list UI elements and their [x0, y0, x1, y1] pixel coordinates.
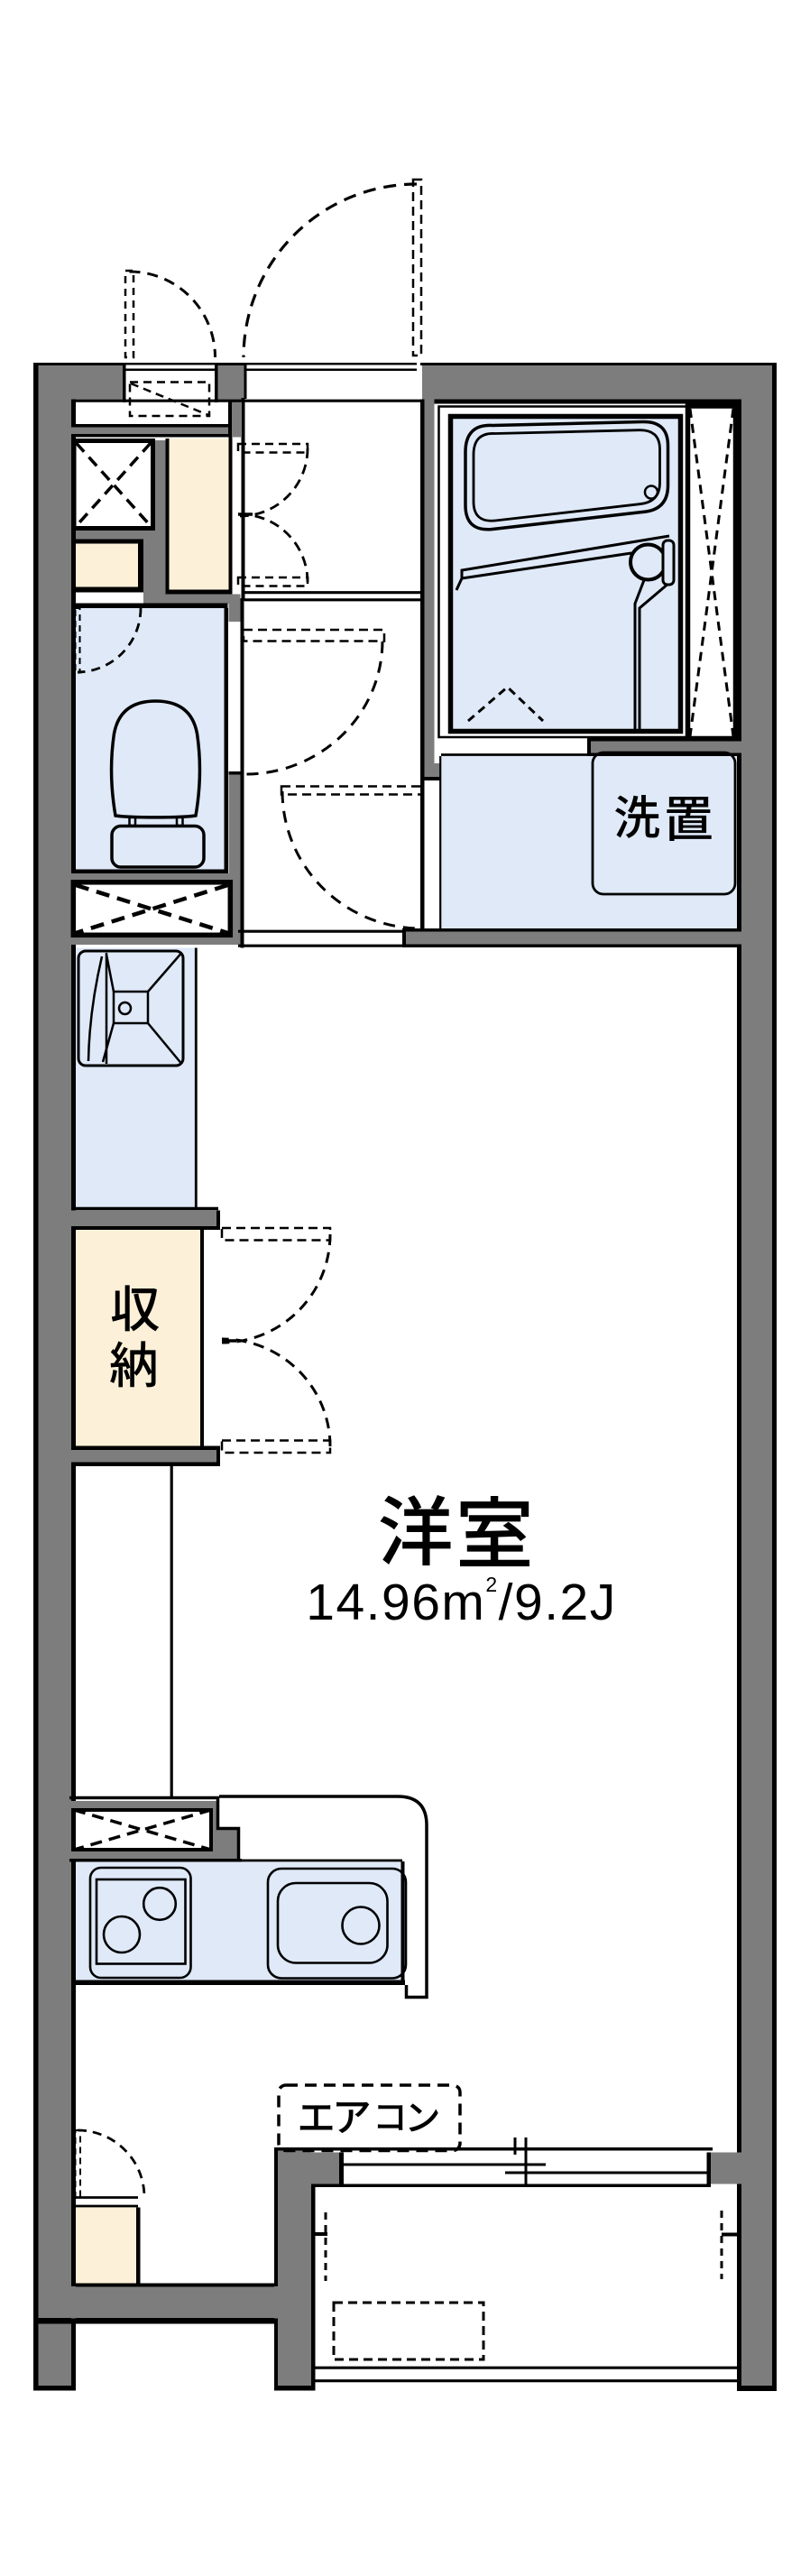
svg-text:14.96m2/9.2J: 14.96m2/9.2J [306, 1573, 617, 1631]
